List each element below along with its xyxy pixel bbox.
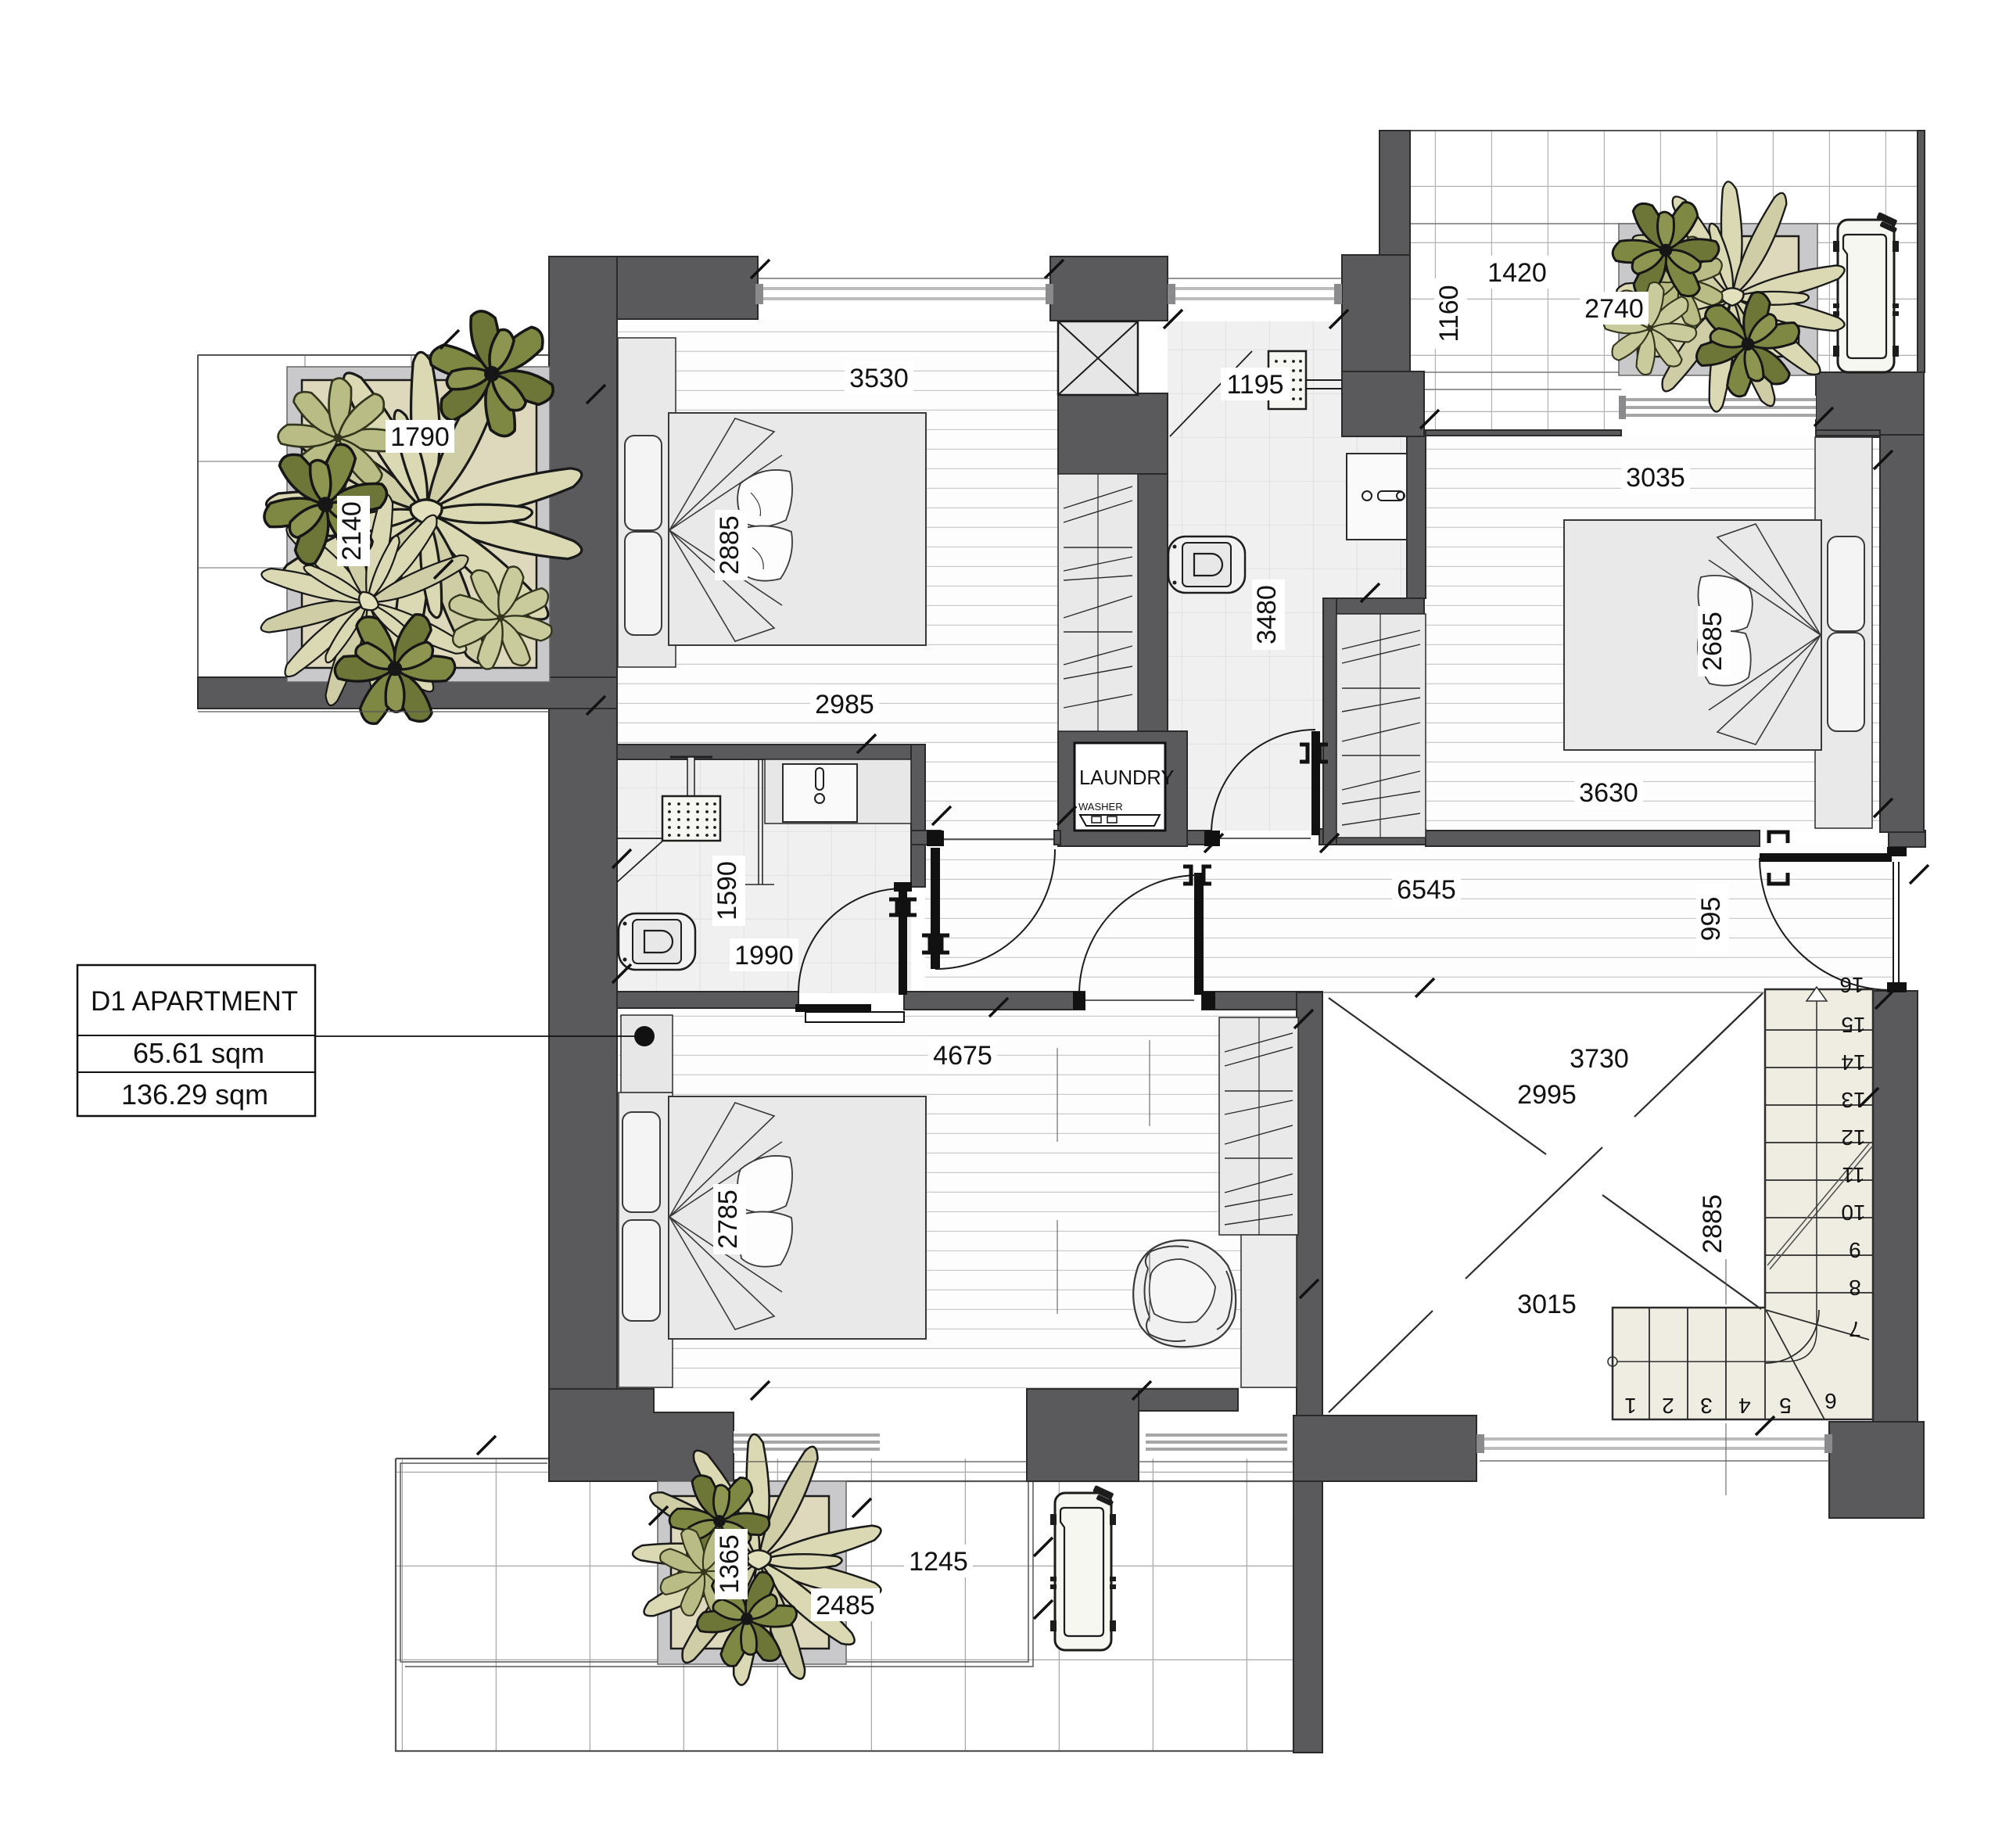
svg-text:3530: 3530	[849, 364, 909, 393]
svg-text:1990: 1990	[734, 941, 794, 971]
svg-text:15: 15	[1841, 1013, 1865, 1037]
svg-text:1160: 1160	[1434, 285, 1464, 342]
svg-text:1365: 1365	[715, 1534, 744, 1594]
svg-text:1790: 1790	[390, 422, 450, 452]
svg-text:13: 13	[1841, 1088, 1865, 1112]
svg-text:6545: 6545	[1397, 875, 1456, 905]
svg-text:9: 9	[1849, 1238, 1861, 1262]
svg-text:7: 7	[1849, 1317, 1861, 1341]
svg-text:12: 12	[1841, 1125, 1865, 1150]
svg-text:3015: 3015	[1517, 1290, 1577, 1319]
svg-text:10: 10	[1841, 1200, 1865, 1225]
svg-text:3: 3	[1700, 1394, 1713, 1418]
svg-text:65.61 sqm: 65.61 sqm	[133, 1037, 264, 1069]
svg-text:3730: 3730	[1570, 1044, 1629, 1074]
svg-text:2885: 2885	[1698, 1194, 1728, 1254]
svg-text:6: 6	[1824, 1389, 1837, 1413]
svg-text:2: 2	[1662, 1394, 1674, 1418]
svg-text:2140: 2140	[337, 501, 367, 561]
svg-text:3035: 3035	[1626, 463, 1685, 493]
svg-text:3630: 3630	[1579, 778, 1638, 808]
svg-text:4675: 4675	[933, 1041, 992, 1071]
svg-text:14: 14	[1841, 1050, 1865, 1075]
svg-text:1: 1	[1624, 1394, 1637, 1418]
svg-text:1420: 1420	[1487, 258, 1547, 288]
svg-text:2785: 2785	[713, 1190, 743, 1249]
svg-text:2485: 2485	[816, 1591, 875, 1620]
svg-text:11: 11	[1842, 1163, 1864, 1187]
svg-text:D1 APARTMENT: D1 APARTMENT	[91, 986, 298, 1017]
svg-text:8: 8	[1849, 1276, 1861, 1300]
svg-text:1245: 1245	[909, 1547, 968, 1577]
svg-text:2740: 2740	[1584, 294, 1644, 324]
svg-text:5: 5	[1779, 1394, 1792, 1418]
svg-text:2685: 2685	[1698, 612, 1728, 671]
svg-text:16: 16	[1839, 973, 1864, 997]
svg-text:995: 995	[1696, 897, 1726, 942]
svg-text:136.29 sqm: 136.29 sqm	[121, 1078, 268, 1111]
svg-text:4: 4	[1738, 1394, 1751, 1418]
svg-text:2995: 2995	[1517, 1080, 1577, 1110]
svg-text:2885: 2885	[715, 515, 744, 575]
svg-text:WASHER: WASHER	[1078, 801, 1123, 813]
svg-text:1195: 1195	[1226, 370, 1283, 400]
svg-text:LAUNDRY: LAUNDRY	[1079, 767, 1174, 789]
svg-text:2985: 2985	[815, 690, 874, 719]
svg-text:3480: 3480	[1252, 585, 1282, 644]
svg-text:1590: 1590	[712, 861, 742, 920]
